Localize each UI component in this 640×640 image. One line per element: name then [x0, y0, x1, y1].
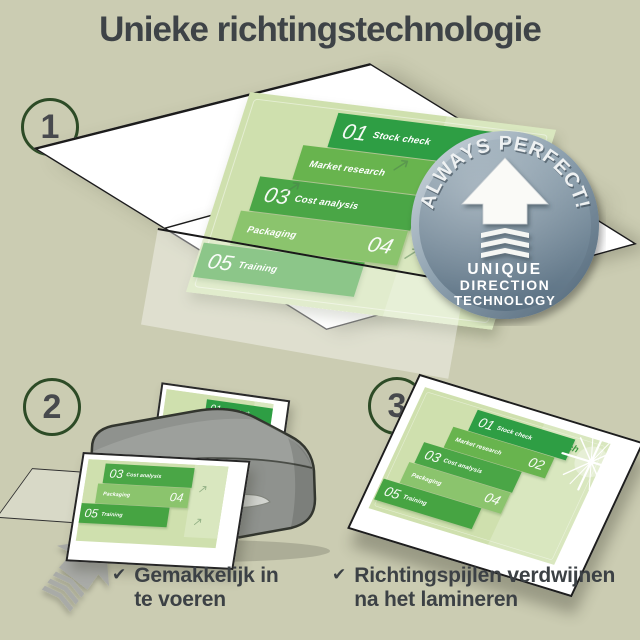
step-number: 05 — [375, 481, 406, 503]
step-label: Market research — [192, 420, 232, 430]
step-label: Packaging — [403, 469, 443, 487]
page-title: Unieke richtingstechnologie — [0, 10, 640, 50]
badge-line-unique: UNIQUE — [467, 261, 542, 278]
step-number: 03 — [416, 445, 447, 467]
step-label: Market research — [296, 157, 387, 178]
step-number: 03 — [103, 466, 127, 481]
timeline-document-small: 03 Cost analysis 04 Packaging 05 Trainin… — [76, 459, 229, 540]
step-number: 04 — [165, 490, 189, 505]
check-item-easy-feed: ✔ Gemakkelijk in te voeren — [112, 564, 279, 612]
step-number: 02 — [249, 424, 269, 438]
direction-arrow-watermark — [197, 483, 211, 496]
check-line-1: Richtingspijlen verdwijnen — [354, 564, 615, 588]
machine-side-shading — [288, 438, 314, 527]
step-label: Training — [402, 493, 428, 507]
badge-line-direction: DIRECTION — [460, 277, 551, 293]
badge-line-technology: TECHNOLOGY — [454, 293, 556, 308]
check-icon: ✔ — [112, 564, 126, 612]
step-label: Cost analysis — [442, 457, 483, 475]
step-2-number: 2 — [23, 378, 81, 436]
check-icon: ✔ — [332, 564, 346, 612]
check-line-1: Gemakkelijk in — [134, 564, 278, 588]
check-text: Richtingspijlen verdwijnen na het lamine… — [354, 564, 615, 612]
timeline-step-05: 05 Training — [78, 503, 170, 527]
direction-arrow-watermark — [192, 515, 206, 528]
always-perfect-badge: ALWAYS PERFECT! ALWAYS PERFECT! UNIQUE D… — [406, 126, 606, 326]
step-label: Packaging — [234, 223, 298, 241]
step-1-label: 1 — [41, 108, 60, 147]
check-line-2: te voeren — [134, 588, 278, 612]
step-label: Packaging — [96, 490, 131, 498]
step-number: 04 — [358, 231, 406, 261]
infographic-canvas: Unieke richtingstechnologie 1 2 3 Launch… — [0, 0, 640, 640]
document-exiting-laminator: 03 Cost analysis 04 Packaging 05 Trainin… — [65, 452, 250, 570]
document-clip: 03 Cost analysis 04 Packaging 05 Trainin… — [76, 459, 229, 548]
step-label: Cost analysis — [126, 471, 162, 479]
step-label: Stock check — [496, 424, 534, 441]
timeline-document-small: Launch 01 Stock check 02 Market research — [160, 389, 273, 450]
step-number: 01 — [205, 402, 225, 416]
step-number: 05 — [78, 506, 102, 521]
check-item-arrows-disappear: ✔ Richtingspijlen verdwijnen na het lami… — [332, 564, 615, 612]
document-clip: Launch 01 Stock check 02 Market research — [160, 389, 273, 450]
step-number: 01 — [469, 413, 500, 435]
step-number: 01 — [329, 118, 377, 148]
step-2-label: 2 — [43, 388, 62, 427]
check-line-2: na het lamineren — [354, 588, 615, 612]
step-label: Training — [101, 511, 123, 518]
check-text: Gemakkelijk in te voeren — [134, 564, 278, 612]
step-label: Stock check — [224, 407, 250, 416]
